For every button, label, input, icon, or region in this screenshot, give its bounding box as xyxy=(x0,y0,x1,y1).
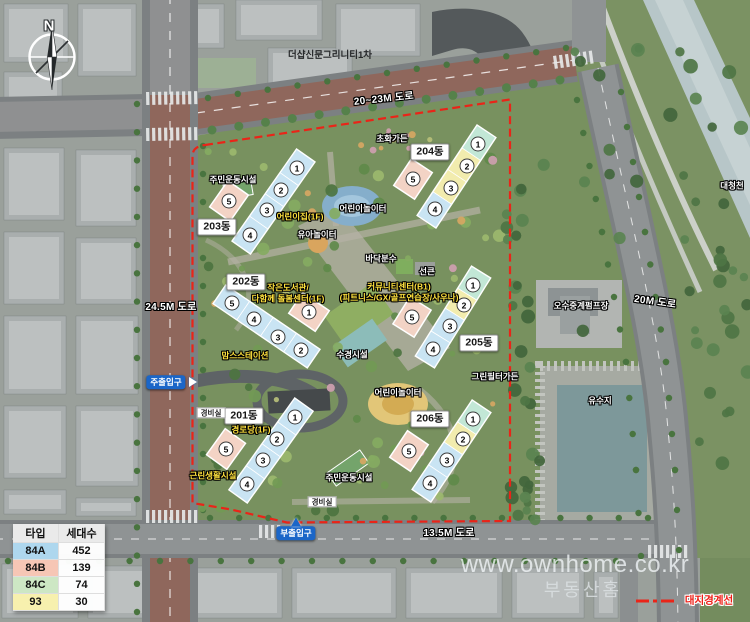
bldg-205-unit-4: 4 xyxy=(426,342,441,357)
small-library: 작은도서관/다함께 돌봄센터(1F) xyxy=(252,282,325,303)
bldg-204-label: 204동 xyxy=(410,143,449,160)
sports-facility-south: 주민운동시설 xyxy=(326,473,373,484)
detention-pond: 유수지 xyxy=(588,396,611,407)
bldg-205-unit-2: 2 xyxy=(457,298,472,313)
bldg-205-unit-3: 3 xyxy=(443,319,458,334)
neighborhood-facility: 근린생활시설 xyxy=(190,471,237,482)
bldg-202-unit-1: 1 xyxy=(302,305,317,320)
bldg-201-unit-5: 5 xyxy=(219,442,234,457)
label-overlay: 12345203동54321202동12345201동12345204동1234… xyxy=(0,0,750,622)
bldg-202-unit-2: 2 xyxy=(294,343,309,358)
bldg-206-unit-1: 1 xyxy=(466,412,481,427)
watermark-url: www.ownhome.co.kr xyxy=(461,551,690,579)
community-center-line: 커뮤니티센터(B1) xyxy=(340,281,459,292)
bldg-205-label: 205동 xyxy=(459,334,498,351)
road-20-23m: 20~23M 도로 xyxy=(353,91,414,110)
bldg-203-unit-3: 3 xyxy=(260,203,275,218)
household-count-cell: 30 xyxy=(59,594,105,611)
unit-type-cell: 84A xyxy=(13,543,59,560)
bldg-202-unit-3: 3 xyxy=(271,330,286,345)
green-filter-garden: 그린필터가든 xyxy=(472,372,519,383)
small-library-line: 다함께 돌봄센터(1F) xyxy=(252,293,325,304)
daecheong-stream: 대청천 xyxy=(720,181,743,192)
bldg-206-label: 206동 xyxy=(410,410,449,427)
bldg-203-label: 203동 xyxy=(197,218,236,235)
site-plan-screenshot: 12345203동54321202동12345201동12345204동1234… xyxy=(0,0,750,622)
header-type: 타입 xyxy=(13,524,59,543)
flower-garden: 초화가든 xyxy=(376,134,407,145)
bldg-201-unit-1: 1 xyxy=(288,410,303,425)
bldg-206-unit-5: 5 xyxy=(402,444,417,459)
bldg-203-unit-2: 2 xyxy=(274,183,289,198)
guard-post-west: 경비실 xyxy=(197,407,226,418)
kids-playground-south: 어린이놀이터 xyxy=(375,388,422,399)
sub-entrance: 부출입구 xyxy=(276,526,315,540)
bldg-204-unit-2: 2 xyxy=(460,159,475,174)
water-feature: 수경시설 xyxy=(336,350,367,361)
header-households: 세대수 xyxy=(59,524,105,543)
bldg-204-unit-5: 5 xyxy=(406,172,421,187)
bldg-201-label: 201동 xyxy=(224,407,263,424)
road-20m: 20M 도로 xyxy=(633,294,677,312)
floor-fountain: 바닥분수 xyxy=(365,254,396,265)
unit-type-table-body: 84A45284B13984C749330 xyxy=(13,543,105,611)
sub-entrance-arrow-icon xyxy=(291,518,301,527)
bldg-203-unit-4: 4 xyxy=(243,228,258,243)
sunken: 선큰 xyxy=(419,267,435,278)
bldg-205-unit-1: 1 xyxy=(466,278,481,293)
unit-type-table-header: 타입 세대수 xyxy=(13,524,105,543)
watermark-brand: 부동산홈 xyxy=(544,576,622,602)
bldg-201-unit-3: 3 xyxy=(256,453,271,468)
bldg-204-unit-4: 4 xyxy=(428,202,443,217)
bldg-203-unit-1: 1 xyxy=(290,161,305,176)
household-count-cell: 452 xyxy=(59,543,105,560)
senior-center: 경로당(1F) xyxy=(231,425,270,436)
bldg-205-unit-5: 5 xyxy=(405,310,420,325)
toddler-playground: 유아놀이터 xyxy=(297,230,336,241)
sports-facility-north: 주민운동시설 xyxy=(210,175,257,186)
sewage-pump-station: 오수중계펌프장 xyxy=(554,301,609,312)
main-entrance: 주출입구 xyxy=(146,375,185,389)
unit-type-cell: 93 xyxy=(13,594,59,611)
bldg-201-unit-4: 4 xyxy=(240,477,255,492)
community-center-line: (피트니스/GX/골프연습장/사우나) xyxy=(340,292,459,303)
bldg-206-unit-4: 4 xyxy=(423,476,438,491)
bldg-206-unit-2: 2 xyxy=(456,432,471,447)
bldg-203-unit-5: 5 xyxy=(222,194,237,209)
bldg-202-unit-4: 4 xyxy=(247,312,262,327)
household-count-cell: 139 xyxy=(59,560,105,577)
main-entrance-arrow-icon xyxy=(189,377,197,387)
bldg-204-unit-3: 3 xyxy=(444,181,459,196)
guard-post-south: 경비실 xyxy=(308,496,337,507)
north-label: N xyxy=(44,18,55,37)
unit-type-cell: 84B xyxy=(13,560,59,577)
neighbor-complex: 더샵신문그리니티1차 xyxy=(288,50,372,62)
bldg-202-unit-5: 5 xyxy=(225,296,240,311)
unit-type-row: 84B139 xyxy=(13,560,105,577)
kids-playground-north: 어린이놀이터 xyxy=(340,204,387,215)
unit-type-cell: 84C xyxy=(13,577,59,594)
unit-type-row: 84A452 xyxy=(13,543,105,560)
bldg-201-unit-2: 2 xyxy=(270,432,285,447)
unit-type-table: 타입 세대수 84A45284B13984C749330 xyxy=(13,524,105,611)
bldg-206-unit-3: 3 xyxy=(440,453,455,468)
site-boundary: 대지경계선 xyxy=(685,594,733,607)
road-13-5m: 13.5M 도로 xyxy=(423,528,474,541)
unit-type-row: 9330 xyxy=(13,594,105,611)
unit-type-row: 84C74 xyxy=(13,577,105,594)
community-center: 커뮤니티센터(B1)(피트니스/GX/골프연습장/사우나) xyxy=(340,281,459,302)
road-24-5m: 24.5M 도로 xyxy=(145,302,196,315)
bldg-204-unit-1: 1 xyxy=(471,137,486,152)
household-count-cell: 74 xyxy=(59,577,105,594)
moms-station: 맘스스테이션 xyxy=(222,351,269,362)
daycare: 어린이집(1F) xyxy=(277,212,324,223)
small-library-line: 작은도서관/ xyxy=(252,282,325,293)
